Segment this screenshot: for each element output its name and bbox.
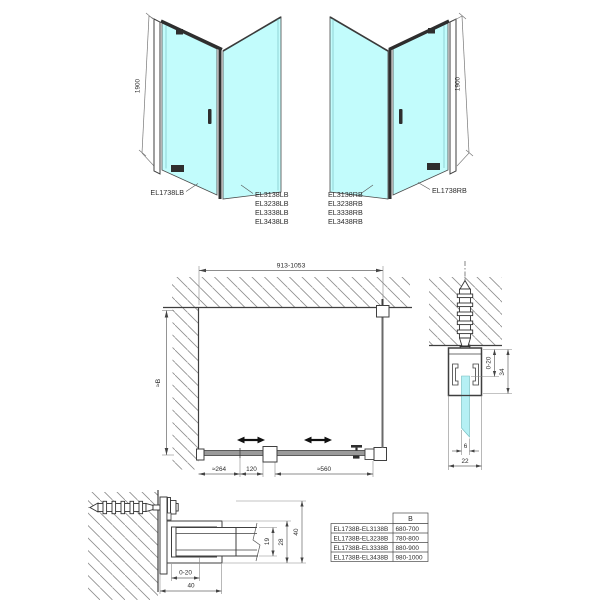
door-profile-height-dim: 40 <box>293 528 300 536</box>
swing-arrow-left <box>237 437 265 444</box>
side-panel-glass-right <box>330 17 388 199</box>
plan-seg-door-dim: ≈560 <box>317 466 332 473</box>
door-profile-adjust-dim: 0-20 <box>179 570 192 577</box>
table-model-3: EL1738B-EL3338B <box>334 545 389 552</box>
label-panel-left-4: EL3438LB <box>255 217 289 226</box>
label-panel-right-1: EL3138RB <box>328 190 363 199</box>
hinge-top-right <box>428 28 435 34</box>
table-b-3: 880-900 <box>396 545 420 552</box>
door-profile-detail: 0-20 40 19 28 40 <box>88 490 306 600</box>
wall-plate-section <box>160 497 167 574</box>
glass-thickness-dim: 6 <box>464 443 468 450</box>
table-model-1: EL1738B-EL3138B <box>334 526 389 533</box>
label-panel-right-3: EL3338RB <box>328 208 363 217</box>
door-handle-right <box>399 109 403 124</box>
label-door-left: EL1738LB <box>150 188 184 197</box>
wall-profile-plan-left <box>197 449 205 460</box>
label-panel-left-3: EL3338LB <box>255 208 289 217</box>
isometric-view-right: 1900 EL3138RB EL3238RB EL3338RB EL3438RB… <box>328 13 473 226</box>
technical-drawing-page: 1900 EL1738LB EL3138LB EL3238LB EL3338LB… <box>0 0 600 600</box>
glass-section <box>462 376 470 437</box>
door-handle-left <box>208 109 212 124</box>
plan-depth-dim: ≈B <box>155 378 162 387</box>
table-row: EL1738B-EL3338B 880-900 <box>334 545 420 552</box>
door-end-cap-plan <box>365 449 374 460</box>
table-row: EL1738B-EL3238B 780-800 <box>334 535 420 542</box>
door-glass-plan <box>204 451 365 456</box>
plan-view: 913-1053 ≈B <box>155 263 412 478</box>
plan-seg-fixed-dim: ≈264 <box>212 466 227 473</box>
door-inner-profile-section <box>176 528 236 557</box>
table-b-2: 780-800 <box>396 535 420 542</box>
label-door-right: EL1738RB <box>432 186 467 195</box>
table-b-4: 980-1000 <box>396 554 423 561</box>
pivot-door-glass-left <box>162 23 217 195</box>
plan-seg-pivot-dim: 120 <box>246 466 257 473</box>
pivot-profile-plan <box>263 447 277 463</box>
hinge-bottom-left <box>171 165 184 172</box>
wall-left-hatch <box>173 308 199 470</box>
wall-profile-width-dim: 22 <box>461 458 469 465</box>
anchor-screw-icon <box>457 261 472 353</box>
wall-profile-depth-dim: 34 <box>499 368 506 376</box>
hinge-top-left <box>176 29 183 35</box>
table-b-1: 680-700 <box>396 526 420 533</box>
table-header-b: B <box>408 516 413 523</box>
door-profile-glass-depth-dim: 19 <box>264 538 271 546</box>
plan-width-dim: 913-1053 <box>277 263 306 270</box>
wall-profile-detail: 0-20 34 6 22 <box>429 261 512 470</box>
wall-profile-left <box>154 19 160 174</box>
panel-wall-bracket-plan <box>377 306 390 318</box>
height-dim-left: 1900 <box>135 78 142 93</box>
corner-connector-plan <box>374 448 387 461</box>
wall-top-hatch <box>172 277 410 308</box>
isometric-view-left: 1900 EL1738LB EL3138LB EL3238LB EL3338LB… <box>135 13 289 226</box>
swing-arrow-right <box>304 437 332 444</box>
table-row: EL1738B-EL3438B 980-1000 <box>334 554 423 561</box>
label-panel-right-2: EL3238RB <box>328 199 363 208</box>
hinge-bottom-right <box>427 163 440 170</box>
table-row: EL1738B-EL3138B 680-700 <box>334 526 420 533</box>
label-panel-left-1: EL3138LB <box>255 190 289 199</box>
label-panel-left-2: EL3238LB <box>255 199 289 208</box>
table-model-2: EL1738B-EL3238B <box>334 535 389 542</box>
break-line <box>253 523 260 561</box>
height-dim-right: 1900 <box>455 76 462 91</box>
size-table: B EL1738B-EL3138B 680-700 EL1738B-EL3238… <box>331 513 428 562</box>
wall-profile-right <box>450 19 456 174</box>
door-profile-width-dim: 40 <box>187 583 195 590</box>
drawing-canvas: 1900 EL1738LB EL3138LB EL3238LB EL3338LB… <box>0 0 600 600</box>
label-panel-right-4: EL3438RB <box>328 217 363 226</box>
door-profile-body-dim: 28 <box>278 538 285 546</box>
wall-profile-adjust-dim: 0-20 <box>486 356 493 369</box>
table-model-4: EL1738B-EL3438B <box>334 554 389 561</box>
side-panel-glass-left <box>223 17 281 199</box>
